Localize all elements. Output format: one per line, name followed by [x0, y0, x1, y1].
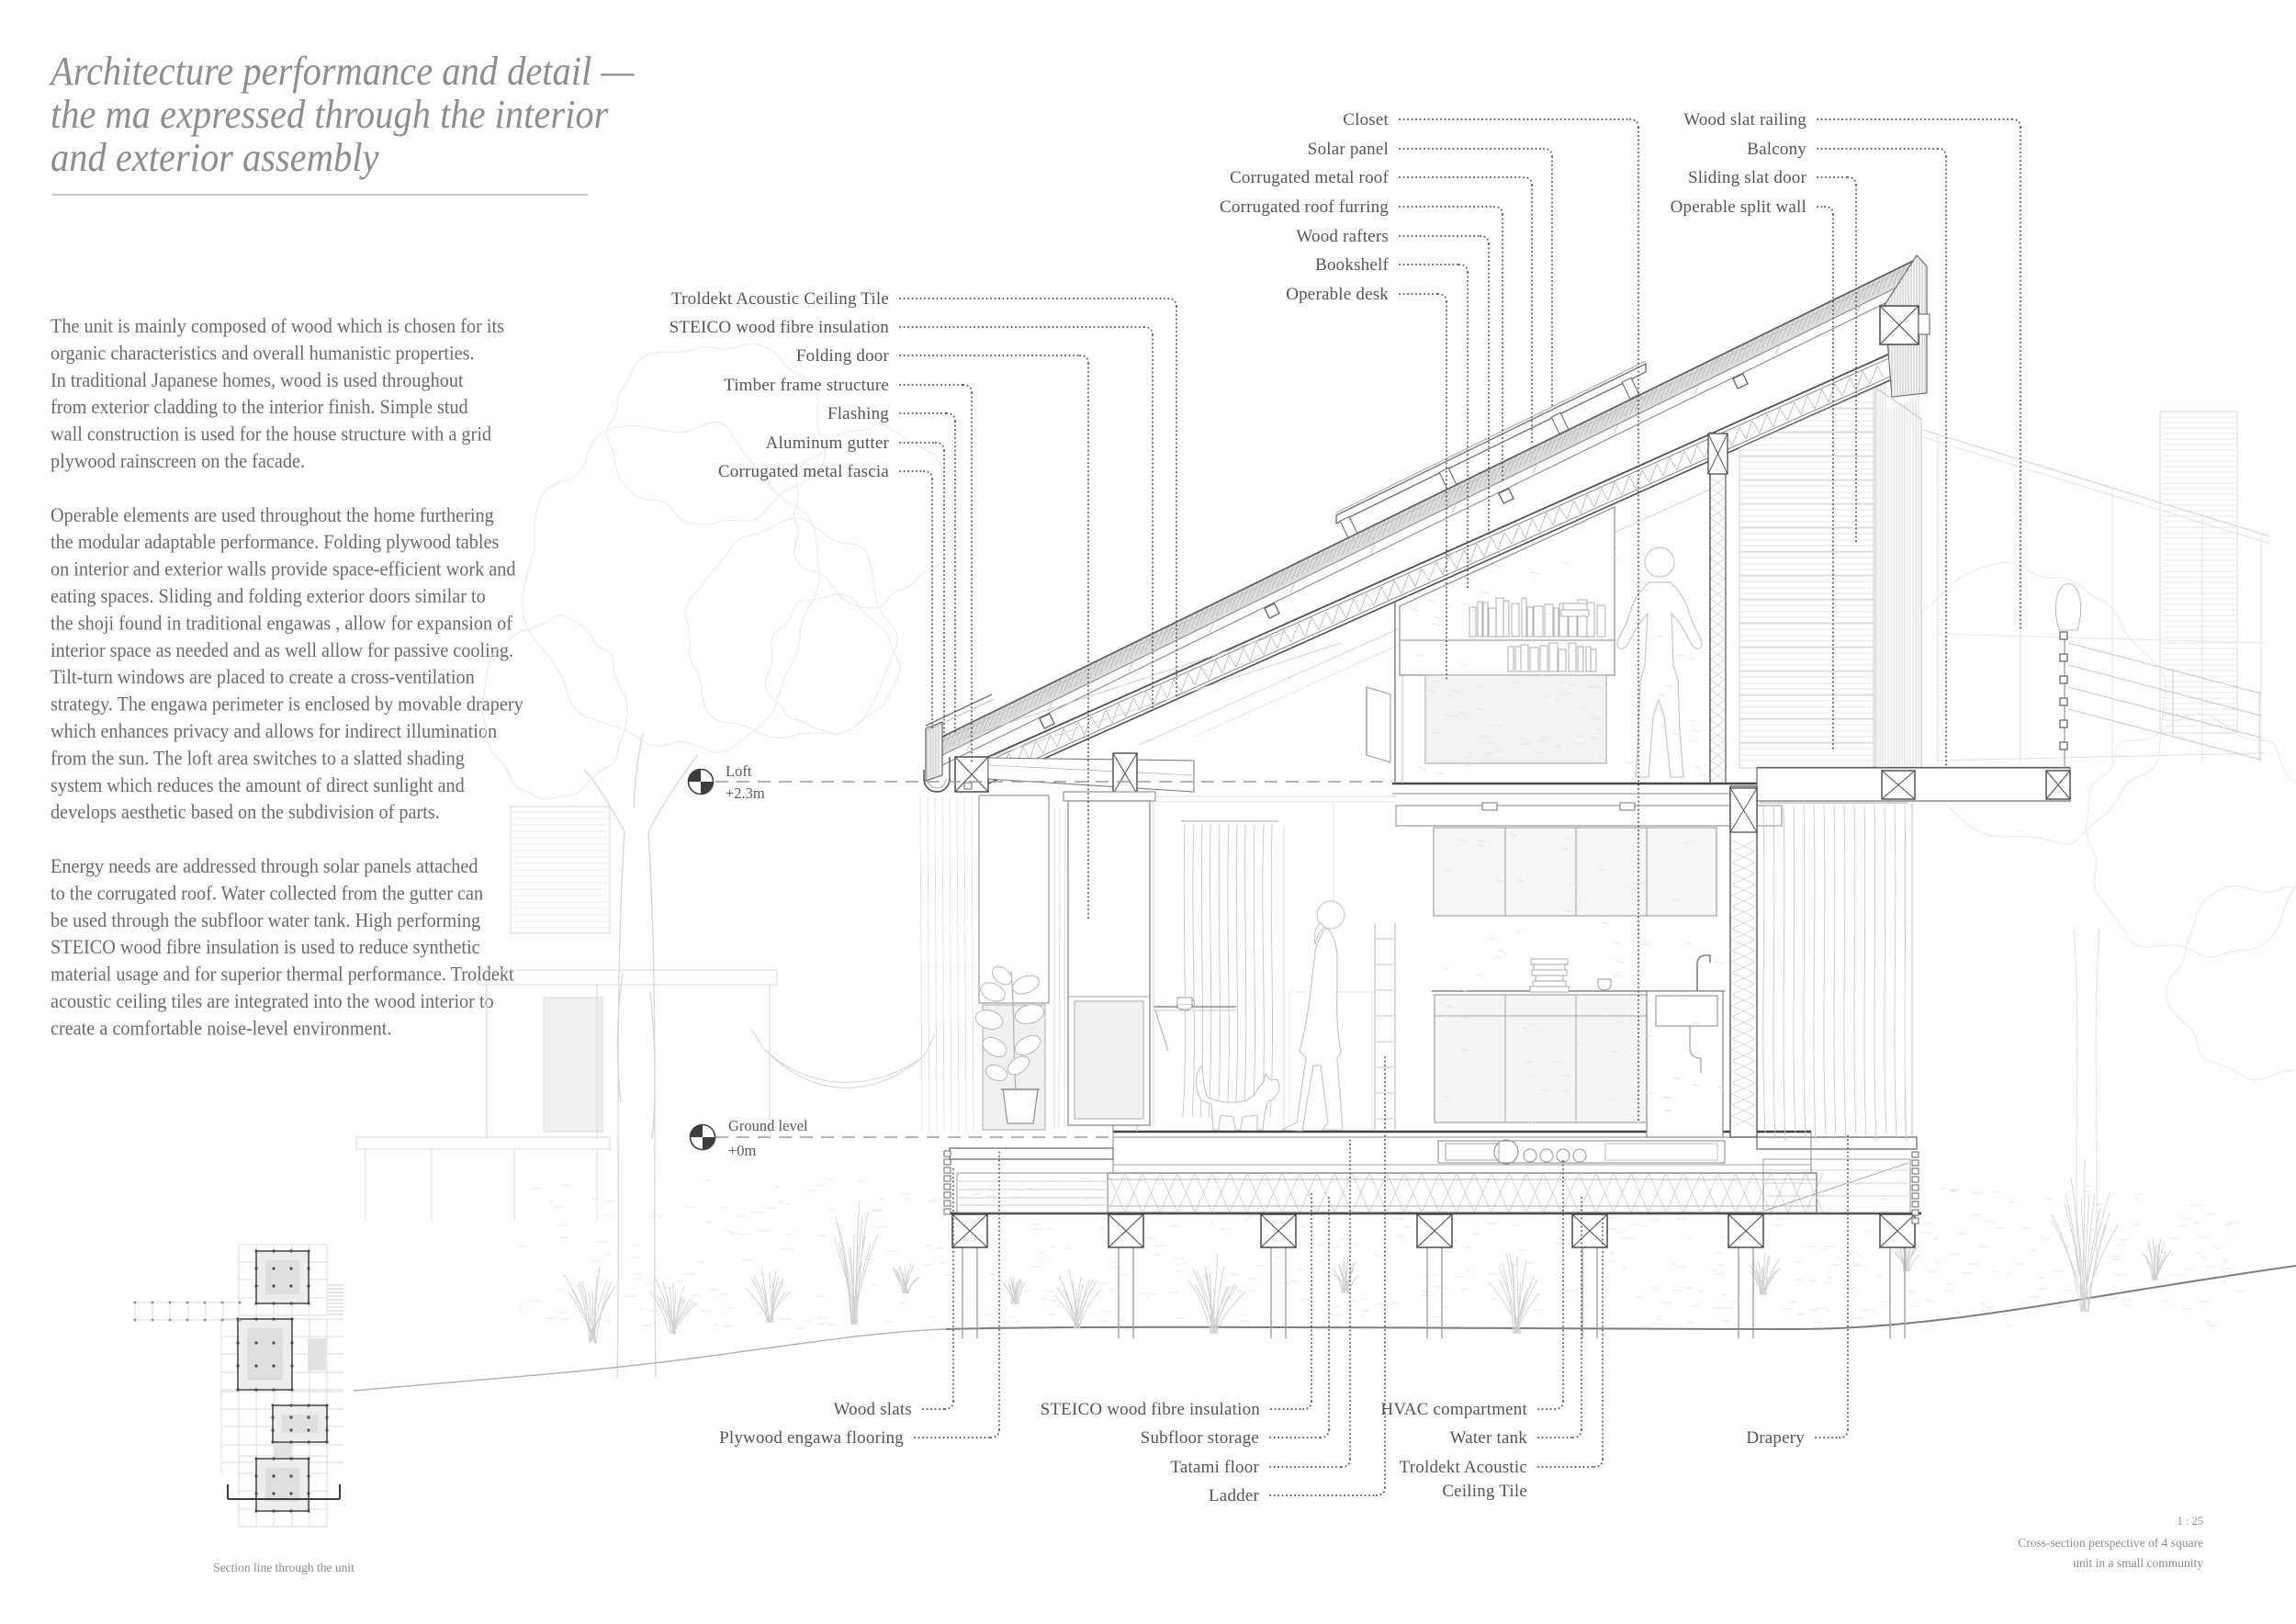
svg-text:Wood slats: Wood slats [834, 1400, 912, 1419]
svg-text:wall construction is used for: wall construction is used for the house … [51, 423, 491, 445]
svg-text:from exterior cladding to the: from exterior cladding to the interior f… [51, 395, 468, 418]
svg-text:Ceiling Tile: Ceiling Tile [1442, 1482, 1527, 1501]
svg-text:Operable split wall: Operable split wall [1671, 197, 1806, 217]
svg-text:Operable elements are used thr: Operable elements are used throughout th… [51, 503, 494, 526]
svg-text:Plywood engawa flooring: Plywood engawa flooring [719, 1428, 904, 1448]
svg-text:and exterior assembly: and exterior assembly [51, 135, 379, 180]
svg-text:Tilt-turn windows are placed t: Tilt-turn windows are placed to create a… [51, 665, 475, 688]
svg-text:Timber frame structure: Timber frame structure [724, 376, 889, 395]
svg-text:plywood rainscreen on the faca: plywood rainscreen on the facade. [51, 449, 305, 472]
svg-text:Energy needs are addressed thr: Energy needs are addressed through solar… [51, 854, 478, 877]
svg-text:system which reduces the amoun: system which reduces the amount of direc… [51, 773, 465, 796]
svg-text:unit in a small community: unit in a small community [2073, 1556, 2203, 1570]
svg-text:organic characteristics and ov: organic characteristics and overall huma… [51, 341, 475, 364]
svg-text:Troldekt Acoustic: Troldekt Acoustic [1400, 1458, 1527, 1477]
svg-text:In traditional Japanese homes,: In traditional Japanese homes, wood is u… [51, 368, 464, 391]
svg-text:to the corrugated roof. Water: to the corrugated roof. Water collected … [51, 881, 483, 904]
svg-text:Ground level: Ground level [728, 1117, 808, 1134]
svg-text:Loft: Loft [726, 762, 752, 780]
svg-text:from the sun. The loft area s: from the sun. The loft area switches to … [51, 746, 465, 769]
svg-text:the shoji found in traditional: the shoji found in traditional engawas ,… [51, 611, 513, 634]
svg-text:Tatami floor: Tatami floor [1170, 1458, 1259, 1477]
svg-text:eating spaces. Sliding and fol: eating spaces. Sliding and folding exter… [51, 584, 486, 607]
svg-text:Corrugated roof furring: Corrugated roof furring [1220, 197, 1389, 217]
svg-text:Operable desk: Operable desk [1286, 285, 1389, 304]
svg-text:acoustic ceiling tiles are int: acoustic ceiling tiles are integrated in… [51, 989, 494, 1012]
svg-text:Flashing: Flashing [827, 404, 889, 423]
svg-text:+0m: +0m [728, 1142, 757, 1159]
svg-text:Bookshelf: Bookshelf [1315, 255, 1389, 275]
svg-text:Wood slat railing: Wood slat railing [1683, 110, 1806, 130]
svg-text:STEICO wood fibre insulation: STEICO wood fibre insulation [670, 318, 890, 337]
svg-text:on interior and exterior walls: on interior and exterior walls provide s… [51, 558, 516, 581]
svg-text:Folding door: Folding door [796, 346, 890, 366]
svg-text:The unit is mainly composed of: The unit is mainly composed of wood whic… [51, 314, 504, 337]
svg-text:develops aesthetic based on th: develops aesthetic based on the subdivis… [51, 800, 440, 823]
svg-text:Subfloor storage: Subfloor storage [1141, 1428, 1259, 1448]
svg-text:Architecture performance and d: Architecture performance and detail — [48, 49, 635, 94]
svg-text:the ma expressed through the i: the ma expressed through the interior [51, 92, 609, 137]
svg-text:Solar panel: Solar panel [1308, 140, 1389, 159]
svg-text:+2.3m: +2.3m [726, 784, 765, 802]
svg-text:Cross-section perspective of 4: Cross-section perspective of 4 square [2018, 1536, 2203, 1550]
svg-text:HVAC compartment: HVAC compartment [1380, 1400, 1527, 1419]
svg-text:1 : 25: 1 : 25 [2178, 1515, 2203, 1528]
svg-text:Corrugated metal roof: Corrugated metal roof [1230, 168, 1390, 187]
svg-text:which enhances privacy and all: which enhances privacy and allows for in… [51, 719, 497, 742]
svg-text:Drapery: Drapery [1746, 1428, 1805, 1448]
svg-text:be used through the subfloor w: be used through the subfloor water tank.… [51, 908, 480, 931]
svg-text:STEICO wood fibre insulation: STEICO wood fibre insulation [1041, 1400, 1261, 1419]
svg-text:STEICO wood fibre insulation i: STEICO wood fibre insulation is used to … [51, 935, 480, 958]
svg-text:interior space as needed and a: interior space as needed and as well all… [51, 638, 513, 661]
svg-text:strategy. The engawa perimeter: strategy. The engawa perimeter is enclos… [51, 693, 523, 716]
svg-text:Ladder: Ladder [1209, 1486, 1259, 1506]
svg-text:Troldekt Acoustic Ceiling Tile: Troldekt Acoustic Ceiling Tile [671, 289, 889, 309]
svg-text:Wood rafters: Wood rafters [1296, 227, 1389, 246]
svg-text:Water tank: Water tank [1450, 1428, 1528, 1448]
svg-text:Section line through the unit: Section line through the unit [213, 1561, 355, 1574]
svg-text:create a comfortable noise-lev: create a comfortable noise-level environ… [51, 1016, 391, 1039]
svg-text:Closet: Closet [1343, 110, 1389, 130]
svg-text:Aluminum gutter: Aluminum gutter [766, 434, 890, 453]
svg-text:the modular adaptable performa: the modular adaptable performance. Foldi… [51, 530, 499, 553]
svg-text:Sliding slat door: Sliding slat door [1688, 168, 1806, 187]
svg-text:Balcony: Balcony [1747, 140, 1806, 159]
svg-text:Corrugated metal fascia: Corrugated metal fascia [718, 462, 889, 481]
svg-text:material usage and for superio: material usage and for superior thermal … [51, 963, 514, 986]
